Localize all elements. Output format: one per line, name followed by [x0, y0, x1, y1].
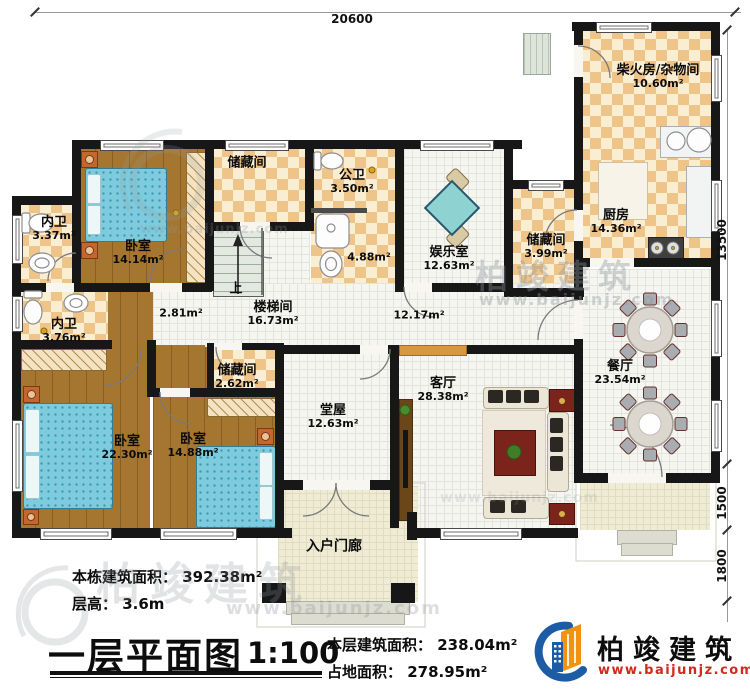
cushion	[550, 418, 563, 433]
window	[100, 140, 164, 151]
wall-segment	[504, 288, 584, 297]
door-opening	[46, 283, 74, 292]
window	[528, 180, 564, 191]
wall-segment	[275, 480, 303, 490]
floor-plan-canvas: 20600 13500 1500 1800 内卫 3.37m² 卧室 14.14…	[0, 0, 750, 691]
kitchen-sink-counter	[660, 126, 713, 158]
room-label-wc1: 内卫 3.37m²	[32, 215, 75, 243]
wardrobe	[186, 152, 206, 283]
porch-step	[291, 613, 405, 625]
wall-segment	[275, 343, 284, 538]
nightstand	[23, 509, 39, 525]
window	[711, 300, 722, 357]
wall-segment	[205, 140, 214, 291]
nightstand	[81, 242, 98, 259]
wall-segment	[12, 196, 78, 205]
kitchen-counter	[686, 166, 713, 238]
room-label-firewood: 柴火房/杂物间 10.60m²	[617, 63, 700, 91]
room-label-storage-kitchen: 储藏间 3.99m²	[524, 233, 567, 261]
door-opening	[574, 300, 583, 339]
room-label-kitchen: 厨房 14.36m²	[590, 208, 641, 236]
room-label-porch: 入户门廊	[306, 539, 362, 556]
window	[711, 55, 722, 102]
porch-pier	[391, 583, 415, 603]
building-area-text: 本栋建筑面积： 392.38m²	[72, 566, 262, 587]
porch-pier	[262, 583, 286, 603]
company-website: www.baijunjz.com	[598, 663, 750, 678]
cushion	[550, 437, 563, 452]
room-label-storage-top: 储藏间	[227, 155, 266, 170]
floor-area-text: 本层建筑面积： 238.04m²	[327, 634, 517, 655]
wardrobe	[21, 349, 107, 371]
wall-segment	[207, 343, 214, 396]
door-opening	[214, 343, 242, 350]
cushion	[511, 500, 526, 513]
window	[160, 528, 237, 540]
exterior-unit	[523, 33, 551, 75]
cushion	[506, 390, 521, 403]
room-label-tangwu: 堂屋 12.63m²	[307, 403, 358, 431]
dimension-line-right	[727, 30, 728, 622]
cushion	[490, 500, 505, 513]
logo-building-orange	[561, 624, 581, 672]
window	[12, 420, 23, 492]
pillow	[259, 452, 273, 486]
window	[711, 400, 722, 452]
logo-building-blue	[552, 642, 563, 672]
area-label-hall1: 2.81m²	[159, 308, 202, 321]
plan-scale: 1:100	[247, 636, 339, 670]
cushion	[524, 390, 539, 403]
room-label-bedroom3: 卧室 14.88m²	[167, 432, 218, 460]
floor-height-text: 层高： 3.6m	[72, 593, 164, 614]
dimension-line-top	[35, 12, 741, 13]
nightstand	[257, 428, 274, 445]
window	[596, 22, 652, 33]
footprint-text: 占地面积： 278.95m²	[327, 661, 487, 682]
wall-segment	[72, 283, 212, 292]
lintel-beam	[399, 345, 467, 356]
wall-segment	[370, 480, 399, 490]
wall-segment	[305, 140, 314, 231]
room-label-bedroom1: 卧室 14.14m²	[112, 239, 163, 267]
nightstand	[81, 151, 98, 168]
dimension-label-right-mid: 1500	[715, 486, 729, 519]
room-label-storage-small: 储藏间 2.62m²	[215, 363, 258, 391]
stair-up-label: 上	[229, 281, 242, 296]
cushion	[488, 390, 503, 403]
company-name: 柏竣建筑	[597, 628, 741, 667]
door-opening	[608, 473, 666, 483]
dimension-label-right-bottom: 1800	[715, 549, 729, 582]
dimension-label-top: 20600	[331, 12, 373, 26]
wall-segment	[504, 140, 513, 297]
side-cabinet	[549, 503, 575, 525]
room-label-public-bath: 公卫 3.50m²	[330, 168, 373, 196]
stove	[648, 237, 684, 260]
room-label-living: 客厅 28.38m²	[417, 376, 468, 404]
window	[12, 215, 23, 264]
rear-step	[621, 543, 673, 556]
door-opening	[360, 345, 388, 354]
area-label-hall2: 12.17m²	[393, 310, 444, 323]
side-cabinet	[549, 389, 575, 412]
room-label-entertainment: 娱乐室 12.63m²	[423, 245, 474, 273]
pillow	[87, 205, 101, 235]
company-logo-icon	[533, 618, 593, 686]
coffee-table	[494, 430, 536, 476]
window	[225, 140, 289, 151]
door-opening	[160, 388, 190, 397]
door-opening	[404, 283, 432, 292]
door-opening	[574, 210, 583, 241]
pillow	[259, 486, 273, 520]
logo-building-line	[567, 634, 569, 666]
window	[420, 140, 494, 151]
nightstand	[23, 386, 40, 403]
room-label-stairwell: 楼梯间 16.73m²	[247, 300, 298, 328]
window	[12, 296, 23, 332]
pillow	[25, 409, 40, 453]
room-label-dining: 餐厅 23.54m²	[594, 359, 645, 387]
title-underline	[50, 671, 322, 675]
door-opening	[150, 283, 182, 292]
wall-segment	[407, 512, 417, 540]
bath-divider-wall	[311, 208, 367, 213]
rear-porch-floor	[580, 482, 710, 530]
door-opening	[303, 480, 370, 490]
title-underline-thin	[50, 677, 322, 678]
wall-segment	[390, 354, 399, 528]
room-label-wc2: 内卫 3.76m²	[42, 317, 85, 345]
wardrobe	[207, 398, 277, 417]
pillow	[87, 174, 101, 204]
wall-segment	[395, 140, 404, 292]
door-opening	[574, 45, 583, 77]
tv-screen	[403, 430, 408, 488]
room-label-bedroom2: 卧室 22.30m²	[101, 434, 152, 462]
window	[40, 528, 112, 540]
pillow	[25, 455, 40, 499]
area-label-wash: 4.88m²	[347, 252, 390, 265]
logo-building-line	[574, 631, 576, 663]
cushion	[550, 456, 563, 471]
window	[440, 528, 522, 540]
dimension-label-right-main: 13500	[715, 219, 729, 261]
door-opening	[240, 222, 270, 231]
door-opening	[590, 258, 634, 267]
